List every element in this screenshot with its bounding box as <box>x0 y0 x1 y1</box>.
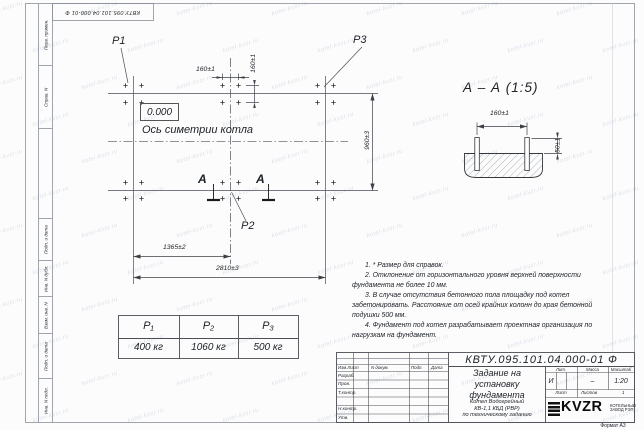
col-podp: Подп. <box>411 366 423 370</box>
table-header-p1: P₁ <box>118 321 179 332</box>
col-n-dokum: N докум. <box>371 366 389 370</box>
scale-value: 1:20 <box>608 378 634 385</box>
load-label-p1: P1 <box>112 36 125 47</box>
section-letter-right: А <box>256 173 265 185</box>
note-1: 1. * Размер для справок. <box>352 261 600 271</box>
dim-2810: 2810±3 <box>216 266 239 273</box>
title-block-name: Задание на установку фундамента <box>449 368 546 400</box>
mass-value: – <box>577 378 608 385</box>
kvzr-brand-subtext: КОТЕЛЬНЫЙ ЗАВОД РЭП <box>610 404 636 414</box>
margin-col-podp-data-1: Подп. и дата <box>39 219 53 261</box>
margin-col-sprav-n: Справ. N <box>39 66 53 129</box>
col-izm-list: Изм.Лист <box>338 366 359 370</box>
drawing-sheet: kotel-kvzr.rukotel-kvzr.rukotel-kvzr.ruk… <box>0 0 644 430</box>
sheets-label: Листов <box>581 391 597 395</box>
section-dim-160: 160±1 <box>490 111 509 118</box>
table-header-p3: P₃ <box>238 321 298 332</box>
margin-col-perv-primen: Перв. примен. <box>39 4 53 66</box>
table-header-p2: P₂ <box>179 321 238 332</box>
row-razrab: Разраб. <box>338 374 355 379</box>
sheets-value: 1 <box>622 391 625 396</box>
mass-label: Масса <box>577 368 608 372</box>
table-value-p3: 500 кг <box>238 343 298 353</box>
scale-label: Масштаб <box>608 368 634 372</box>
notes-block: 1. * Размер для справок. 2. Отклонение о… <box>352 261 600 341</box>
elevation-marker: 0.000 <box>140 103 179 121</box>
margin-col-inv-podl: Инв. N подл. <box>39 379 53 423</box>
lit-label: Лит. <box>545 368 577 372</box>
col-data: Дата <box>431 366 443 370</box>
kvzr-logo-icon <box>548 402 560 417</box>
title-block-doc-number: КВТУ.095.101.04.000-01 Ф <box>449 353 635 367</box>
note-2: 2. Отклонение от горизонтального уровня … <box>352 271 600 291</box>
title-block-subtitle: Котел Водогрейный КВ-1,1 КБД (РВР) по те… <box>449 399 546 419</box>
table-value-p1: 400 кг <box>118 343 179 353</box>
lit-value: И <box>545 378 557 385</box>
section-view <box>465 123 563 178</box>
margin-col-podp-data-2: Подп. и дата <box>39 334 53 379</box>
dim-160-vertical: 160±1 <box>251 51 258 76</box>
elevation-value: 0.000 <box>147 107 172 118</box>
top-stamp-doc-number: КВТУ.095.101.04.000-01 Ф <box>52 3 153 20</box>
dim-1365: 1365±2 <box>163 245 186 252</box>
note-4: 4. Фундамент под котел разрабатывает про… <box>352 321 600 341</box>
margin-col-inv-dubl: Инв. N дубл. <box>39 261 53 297</box>
section-letter-left: А <box>198 173 207 185</box>
row-nkontr: Н.контр. <box>338 407 357 412</box>
row-prov: Пров. <box>338 382 350 387</box>
table-value-p2: 1060 кг <box>179 343 238 353</box>
sheet-label: Лист <box>545 391 577 395</box>
margin-col-vzam-inv: Взам. инв. N <box>39 297 53 334</box>
note-3: 3. В случае отсутствия бетонного пола пл… <box>352 291 600 321</box>
load-label-p2: P2 <box>241 221 254 232</box>
load-label-p3: P3 <box>353 35 366 46</box>
plan-axis-lines <box>108 58 378 284</box>
dim-160-horizontal: 160±1 <box>196 67 215 74</box>
section-dim-50: 50±1 <box>556 133 563 157</box>
axis-of-symmetry-label: Ось симетрии котла <box>142 125 253 136</box>
dim-960: 960±3 <box>365 128 372 153</box>
row-utv: Утв. <box>338 416 348 421</box>
section-cut-marks <box>207 184 275 200</box>
anchor-bolt-marks <box>123 83 335 200</box>
row-tkontr: Т.контр. <box>338 391 357 396</box>
kvzr-brand-text: KVZR <box>561 399 602 415</box>
top-stamp-text: КВТУ.095.101.04.000-01 Ф <box>65 9 140 15</box>
format-label: Формат А3 <box>590 424 636 429</box>
section-title: А – А (1:5) <box>463 81 539 95</box>
